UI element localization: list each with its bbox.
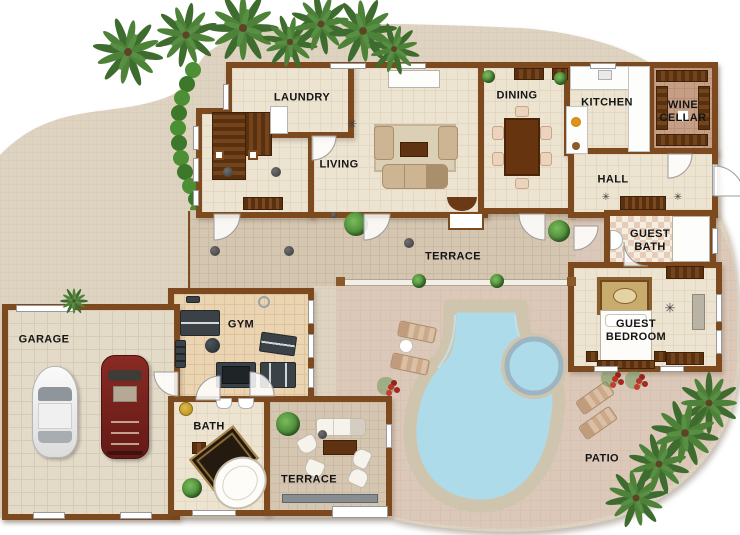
outdoor-coffee-table (323, 440, 357, 455)
kitchen-sink (598, 70, 612, 80)
window (386, 424, 392, 448)
terrace-plant (344, 212, 368, 236)
railing-plant (490, 274, 504, 288)
exercise-ball (205, 338, 220, 353)
potted-plant (482, 70, 495, 83)
dining-chair (492, 152, 504, 166)
ceiling-fan-icon: ✳ (665, 302, 676, 315)
ceiling-fan-icon: ✳ (602, 193, 610, 203)
terrace-step-bench (282, 494, 378, 503)
dining-chair (492, 126, 504, 140)
label-guest-bath: GUEST BATH (626, 228, 674, 254)
label-living: LIVING (319, 158, 358, 171)
window (716, 294, 722, 322)
shower (672, 216, 710, 262)
dining-cabinet (514, 68, 544, 80)
label-guest-bedroom: GUEST BEDROOM (596, 318, 676, 344)
gym-hoop (258, 296, 270, 308)
entry-planter (448, 212, 484, 230)
suv-sunroof (113, 386, 137, 402)
gym-mat (186, 296, 200, 303)
car-roof (38, 403, 72, 429)
flower-pot (636, 378, 642, 384)
weights-station (260, 362, 296, 388)
terrace-plant (276, 412, 300, 436)
window (193, 126, 199, 150)
label-wine-cellar: WINE CELLAR (654, 99, 712, 125)
dumbbell-rack (175, 340, 186, 368)
garage-entry (16, 305, 74, 312)
window (192, 510, 236, 516)
dining-chair (540, 152, 552, 166)
car-rear-window (38, 431, 72, 443)
bathroom-sink (238, 398, 254, 409)
window (712, 228, 718, 254)
bathroom-sink (216, 398, 232, 409)
window (396, 63, 426, 69)
car-windshield (38, 387, 72, 401)
window (308, 300, 314, 324)
window (716, 330, 722, 354)
potted-plant (554, 72, 567, 85)
window (193, 190, 199, 206)
suv-roof-rack (111, 412, 139, 446)
flower-pot (388, 384, 394, 390)
foyer-cabinet-handle (248, 150, 258, 160)
terrace-light (404, 238, 414, 248)
car-white (32, 366, 78, 458)
label-terrace: TERRACE (425, 250, 481, 263)
foyer-cabinet-handle (214, 150, 224, 160)
cooktop-knob (572, 142, 580, 150)
window (308, 368, 314, 388)
nightstand (586, 351, 598, 362)
ceiling-fan-icon: ✳ (674, 193, 682, 203)
window (330, 63, 366, 69)
window (193, 158, 199, 182)
bedroom-closet (666, 266, 704, 279)
window (308, 334, 314, 358)
sofa (382, 164, 448, 189)
armchair (374, 126, 394, 160)
dining-chair (515, 178, 529, 189)
table-decor (318, 430, 327, 439)
railing-post (336, 277, 345, 286)
railing-post (567, 277, 576, 286)
car-red-suv (101, 355, 149, 459)
dresser (692, 294, 705, 330)
terrace-light (284, 246, 294, 256)
label-garage: GARAGE (19, 333, 70, 346)
terrace-light (210, 246, 220, 256)
wine-rack (656, 70, 708, 82)
terrace-plant (548, 220, 570, 242)
window (594, 366, 618, 372)
suv-tailgate (107, 451, 143, 455)
washer (270, 106, 288, 134)
treadmill-belt (222, 366, 250, 384)
terrace-railing (338, 279, 576, 286)
sideboard (388, 70, 440, 88)
foyer-bench (243, 197, 283, 210)
label-patio: PATIO (585, 452, 619, 465)
bath-plant (182, 478, 202, 498)
bedroom-rug-medallion (613, 288, 637, 304)
suv-windshield (108, 370, 142, 381)
door-opening (712, 164, 718, 196)
bedroom-closet (666, 352, 704, 365)
ceiling-fan-icon: ✳ (347, 118, 357, 130)
dining-chair (540, 126, 552, 140)
garage-door (120, 512, 152, 519)
armchair (438, 126, 458, 160)
terrace-light (331, 212, 337, 218)
bath-stool (179, 402, 193, 416)
cooktop-burner (571, 117, 581, 127)
window (223, 84, 229, 110)
label-gym: GYM (228, 318, 254, 331)
label-kitchen: KITCHEN (581, 96, 633, 109)
label-laundry: LAUNDRY (274, 91, 330, 104)
spa (507, 339, 561, 393)
flower-pot (612, 376, 618, 382)
foyer-column (223, 167, 233, 177)
hall-bench (620, 196, 666, 210)
nightstand (654, 351, 666, 362)
label-bath: BATH (193, 420, 224, 433)
coffee-table (400, 142, 428, 157)
dining-chair (515, 106, 529, 117)
floor-plan: ✳ ✳ ✳ ✳ (0, 0, 740, 535)
foyer-column (271, 167, 281, 177)
railing-plant (412, 274, 426, 288)
label-hall: HALL (598, 173, 629, 186)
label-dining: DINING (497, 89, 538, 102)
terrace-steps (332, 506, 388, 518)
dining-table (504, 118, 540, 176)
pool-side-table (399, 339, 413, 353)
label-terrace-lower: TERRACE (281, 473, 337, 486)
window (660, 366, 684, 372)
wine-rack (656, 134, 708, 146)
garage-door (33, 512, 65, 519)
bench-press (180, 310, 220, 336)
window (590, 63, 616, 69)
